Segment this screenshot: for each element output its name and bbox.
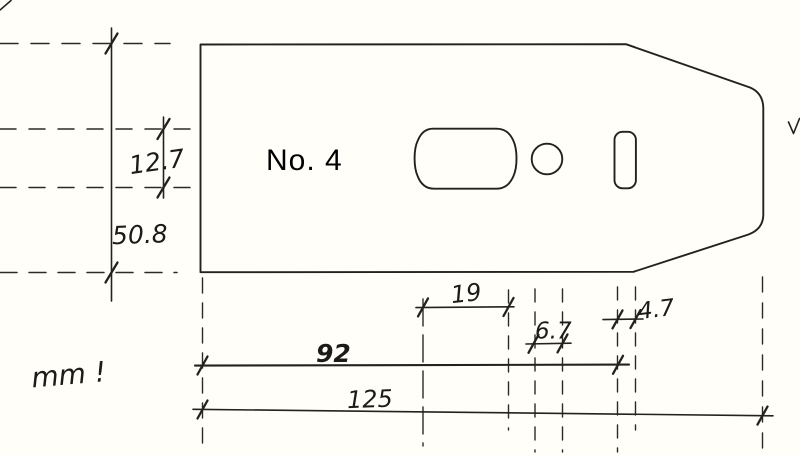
dim-line-edge-to-screw-slot [195,365,629,366]
stray-mark-top-left [0,1,11,11]
stray-mark-right-edge [789,119,800,134]
dim-label-round-hole-diameter: 6.7 [535,319,572,345]
technical-drawing-sheet: 12.7 50.8 19 6.7 4.7 92 125 mm ! No. 4 [0,0,800,455]
plane-iron-drawing-canvas: 12.7 50.8 19 6.7 4.7 92 125 mm ! No. 4 [0,0,800,455]
dim-line-small-slot-width [603,319,643,320]
dim-label-blade-width: 50.8 [112,219,169,250]
dim-label-small-slot-width: 4.7 [637,295,677,325]
dim-line-overall-length [193,409,773,416]
dim-label-overall-length: 125 [347,385,394,415]
part-number-label: No. 4 [266,144,343,177]
dim-label-hole-height: 12.7 [127,144,186,180]
units-note-label: mm ! [30,355,107,394]
round-screw-hole [532,144,563,175]
dim-label-edge-to-screw-slot: 92 [316,339,351,368]
small-slot-hole [615,132,636,189]
dim-label-slot-hole-length: 19 [449,278,482,309]
cap-screw-slot-hole [415,129,517,189]
